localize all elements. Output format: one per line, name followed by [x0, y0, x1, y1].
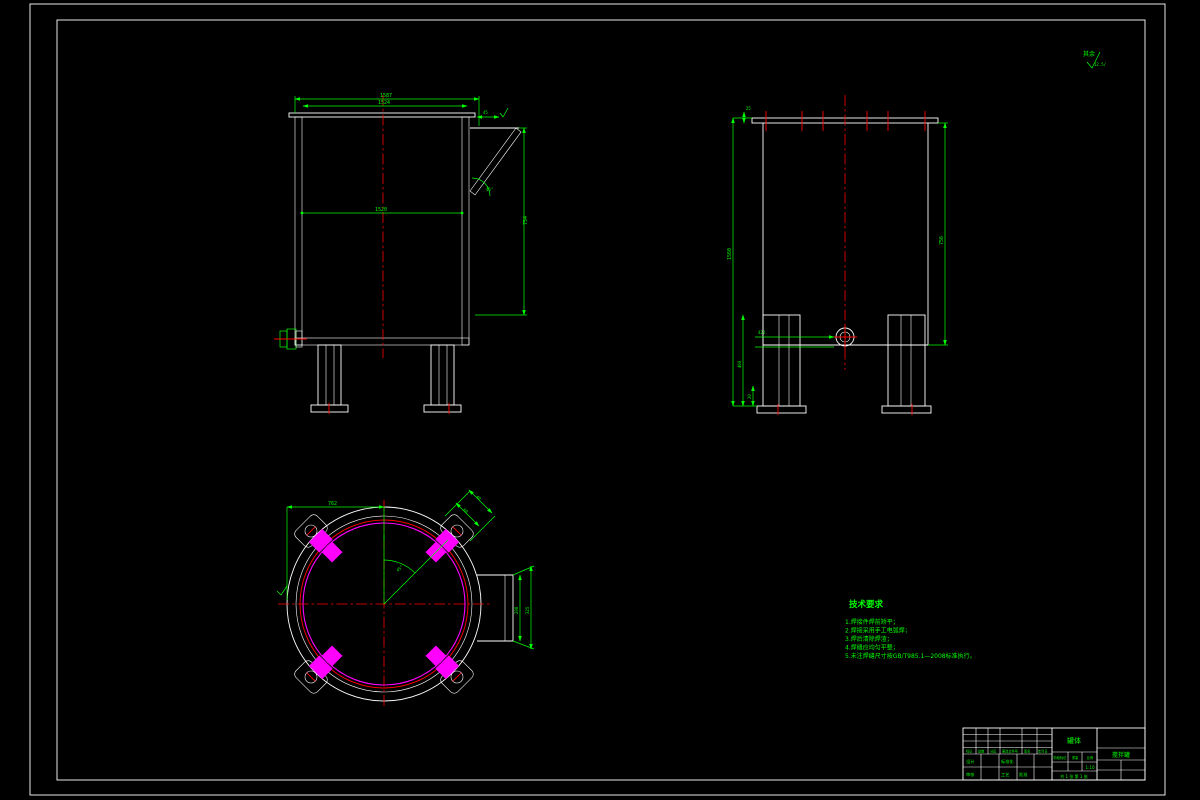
sign-label-check: 审核: [966, 771, 975, 778]
dim-leg-height: 460: [737, 360, 742, 368]
dim-mid-width: 1520: [375, 207, 387, 213]
rev-col-label: 年月日: [1038, 749, 1048, 754]
sign-label-standard: 标准化: [1001, 758, 1014, 765]
tech-req-line: 3.焊后清除焊渣；: [845, 635, 893, 643]
tech-req-title: 技术要求: [849, 599, 884, 610]
rev-col-label: 更改文件号: [1002, 749, 1018, 754]
rev-col-label: 分区: [990, 749, 997, 754]
dim-lip: 25: [746, 106, 751, 111]
part-name: 罐体: [1067, 736, 1081, 745]
dim-overall-height: 1560: [727, 248, 733, 260]
sign-label-approve: 批准: [1019, 771, 1027, 778]
dim-overall-width: 1587: [380, 93, 392, 99]
rev-col-label: 签名: [1024, 749, 1030, 754]
scale-label: 比例: [1087, 755, 1093, 760]
dim-body-height: 756: [939, 236, 945, 245]
dim-chute-depth: 325: [525, 606, 530, 614]
stage-label: 阶段标记: [1054, 755, 1068, 760]
chute-angle-dim: 45°: [486, 187, 493, 192]
weight-label: 重量: [1072, 755, 1079, 760]
surface-note-text: 其余: [1083, 50, 1095, 58]
roughness-value: 12.5/: [1094, 62, 1107, 67]
dim-chute-height: 754: [523, 216, 529, 225]
dim-foot: 20: [747, 394, 752, 399]
dim-radius: 762: [328, 501, 337, 507]
sheet-info: 共 1 张 第 1 张: [1060, 773, 1087, 779]
dim-dot: [461, 212, 464, 215]
tech-req-line: 2.焊接采用手工电弧焊；: [845, 627, 911, 635]
scale-value: 1:10: [1086, 765, 1095, 770]
product-name: 搅拌罐: [1112, 751, 1130, 759]
tech-req-line: 1.焊接件焊前矫平；: [845, 618, 899, 626]
cad-drawing-canvas: 其余 12.5/: [0, 0, 1200, 800]
rev-col-label: 标记: [966, 749, 973, 754]
sign-label-design: 设计: [966, 758, 974, 765]
drawing-background: [0, 0, 1200, 800]
dim-chute-width: 298: [514, 606, 519, 614]
dim-outlet-offset: 422: [758, 330, 766, 335]
dim-dot: [301, 212, 304, 215]
dim-flange-width: 1524: [378, 100, 390, 106]
sign-label-process: 工艺: [1001, 772, 1009, 777]
tech-req-line: 4.焊缝应均匀平整；: [845, 644, 899, 652]
tech-req-line: 5.未注焊缝尺寸按GB/T985.1—2008标准执行。: [845, 652, 976, 660]
dim-chute-offset: 45: [483, 110, 488, 115]
rev-col-label: 处数: [978, 749, 985, 754]
